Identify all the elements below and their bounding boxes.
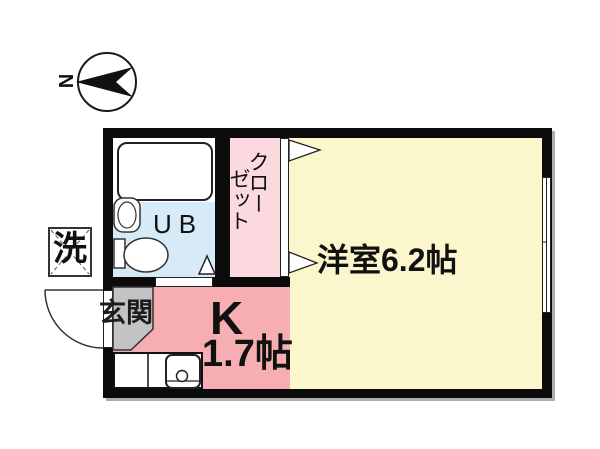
closet-door-strip (280, 138, 289, 277)
kitchen-counter (113, 352, 203, 389)
bath-door-opening (155, 277, 213, 287)
compass-north-label: N (55, 74, 75, 88)
closet-label-col2: ゼット (228, 168, 249, 231)
main-room-label: 洋室6.2帖 (317, 244, 458, 276)
compass-needle-icon (76, 67, 133, 97)
compass-circle (78, 53, 136, 111)
washer-label: 洗 (48, 232, 92, 266)
entrance-door-swing-icon (45, 290, 103, 348)
wall-top (103, 128, 552, 138)
kitchen-size-label: 1.7帖 (202, 335, 293, 373)
bath-room-upper (113, 138, 215, 202)
entrance-label: 玄関 (99, 300, 153, 327)
wall-left-upper (103, 138, 113, 290)
wall-bottom (103, 389, 552, 398)
unit-bath-label: UB (153, 211, 203, 237)
window-right (542, 177, 551, 313)
closet-label-col1: クロー (247, 151, 268, 214)
